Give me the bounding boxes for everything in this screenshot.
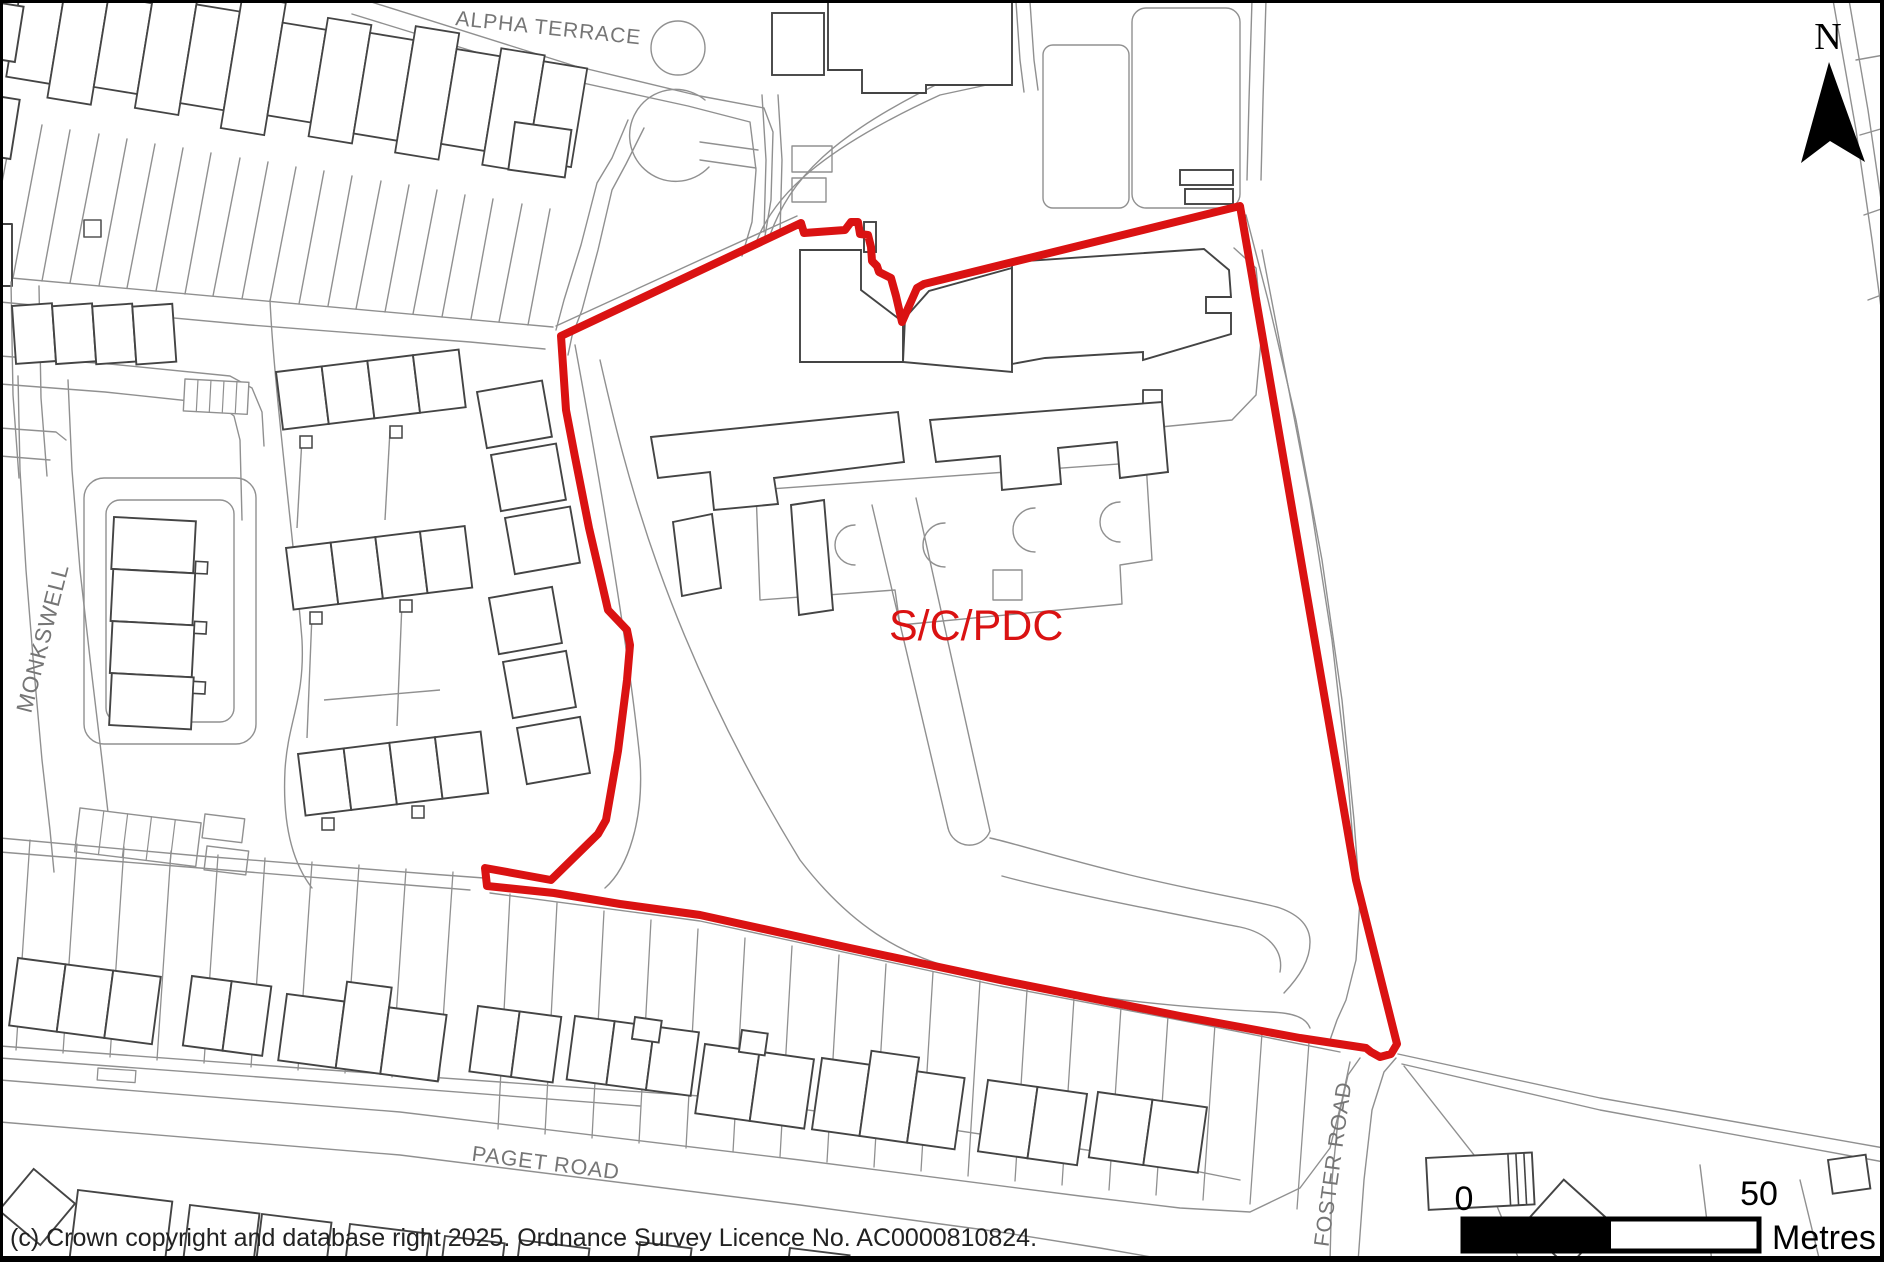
- svg-text:(c) Crown copyright and databa: (c) Crown copyright and database right 2…: [10, 1224, 1037, 1252]
- svg-text:Metres: Metres: [1772, 1219, 1876, 1257]
- svg-text:50: 50: [1740, 1175, 1778, 1213]
- svg-text:N: N: [1814, 16, 1841, 58]
- svg-text:0: 0: [1455, 1180, 1474, 1218]
- svg-text:S/C/PDC: S/C/PDC: [889, 602, 1063, 650]
